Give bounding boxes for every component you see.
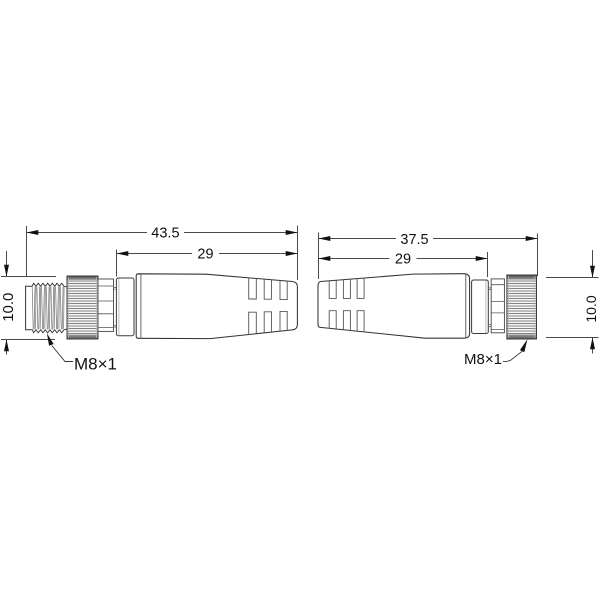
- svg-text:M8×1: M8×1: [74, 354, 117, 373]
- svg-text:10.0: 10.0: [0, 293, 17, 322]
- svg-text:43.5: 43.5: [151, 225, 179, 241]
- svg-text:10.0: 10.0: [583, 295, 599, 322]
- svg-text:M8×1: M8×1: [464, 351, 502, 368]
- svg-text:29: 29: [197, 247, 213, 263]
- svg-text:29: 29: [395, 252, 411, 268]
- svg-text:37.5: 37.5: [400, 232, 428, 248]
